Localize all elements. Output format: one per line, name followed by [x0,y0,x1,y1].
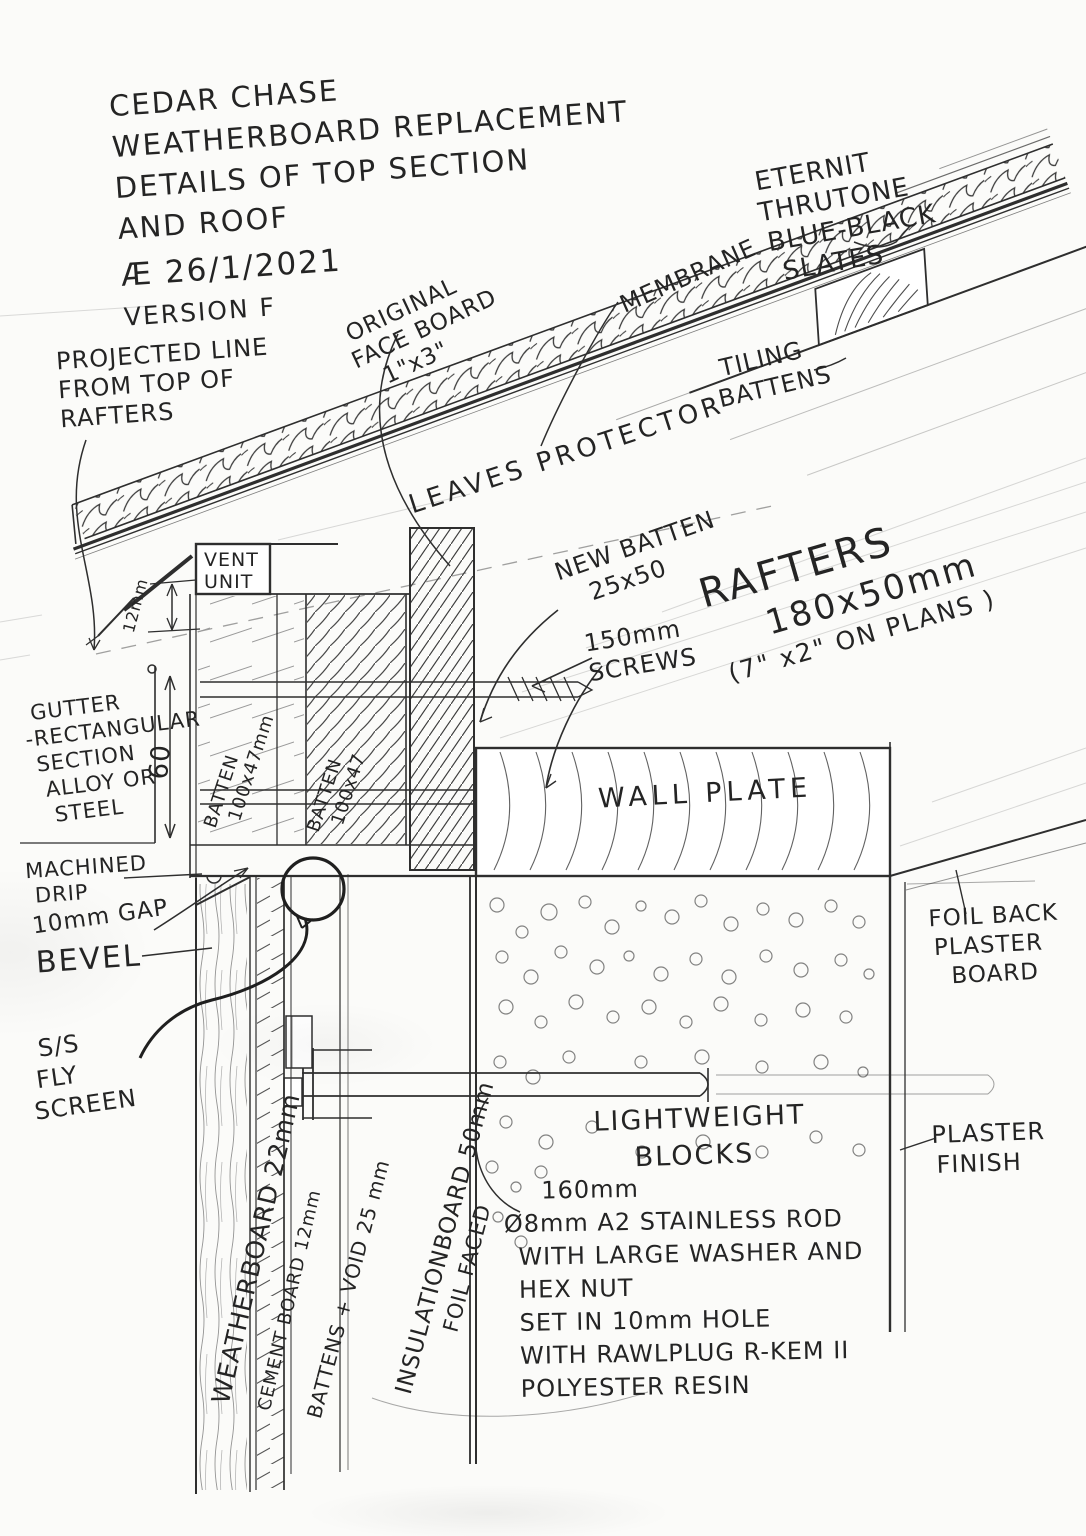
label-rod-note: 160mm Ø8mm A2 STAINLESS ROD WITH LARGE W… [503,1169,866,1406]
label-foil-back-plasterboard: FOIL BACK PLASTER BOARD [928,899,1062,993]
label-line: WITH RAWLPLUG R-KEM II [520,1334,866,1373]
label-line: PLASTER [931,1116,1046,1150]
label-lightweight-blocks: LIGHTWEIGHT BLOCKS [593,1096,808,1177]
label-line: 160mm [541,1169,863,1208]
label-dim-60: 60 [144,743,178,781]
label-line: LIGHTWEIGHT [593,1096,806,1140]
label-line: VENT [204,549,259,571]
label-vent-unit: VENT UNIT [204,549,259,593]
label-bevel: BEVEL [35,938,143,981]
wall-plate-box [476,742,890,884]
label-line: FINISH [936,1146,1047,1180]
label-fly-screen: S/S FLY SCREEN [24,1021,139,1127]
label-gutter: GUTTER -RECTANGULAR SECTION ALLOY OR STE… [21,680,212,830]
label-projected-line: PROJECTED LINE FROM TOP OF RAFTERS [55,333,273,435]
label-plaster-finish: PLASTER FINISH [931,1116,1047,1180]
title-block: CEDAR CHASE WEATHERBOARD REPLACEMENT DET… [108,50,642,337]
scanned-sketch-page: CEDAR CHASE WEATHERBOARD REPLACEMENT DET… [0,0,1086,1536]
label-line: POLYESTER RESIN [520,1367,866,1406]
label-line: WITH LARGE WASHER AND [518,1235,864,1274]
label-line: BOARD [951,957,1062,992]
label-line: UNIT [204,571,259,593]
